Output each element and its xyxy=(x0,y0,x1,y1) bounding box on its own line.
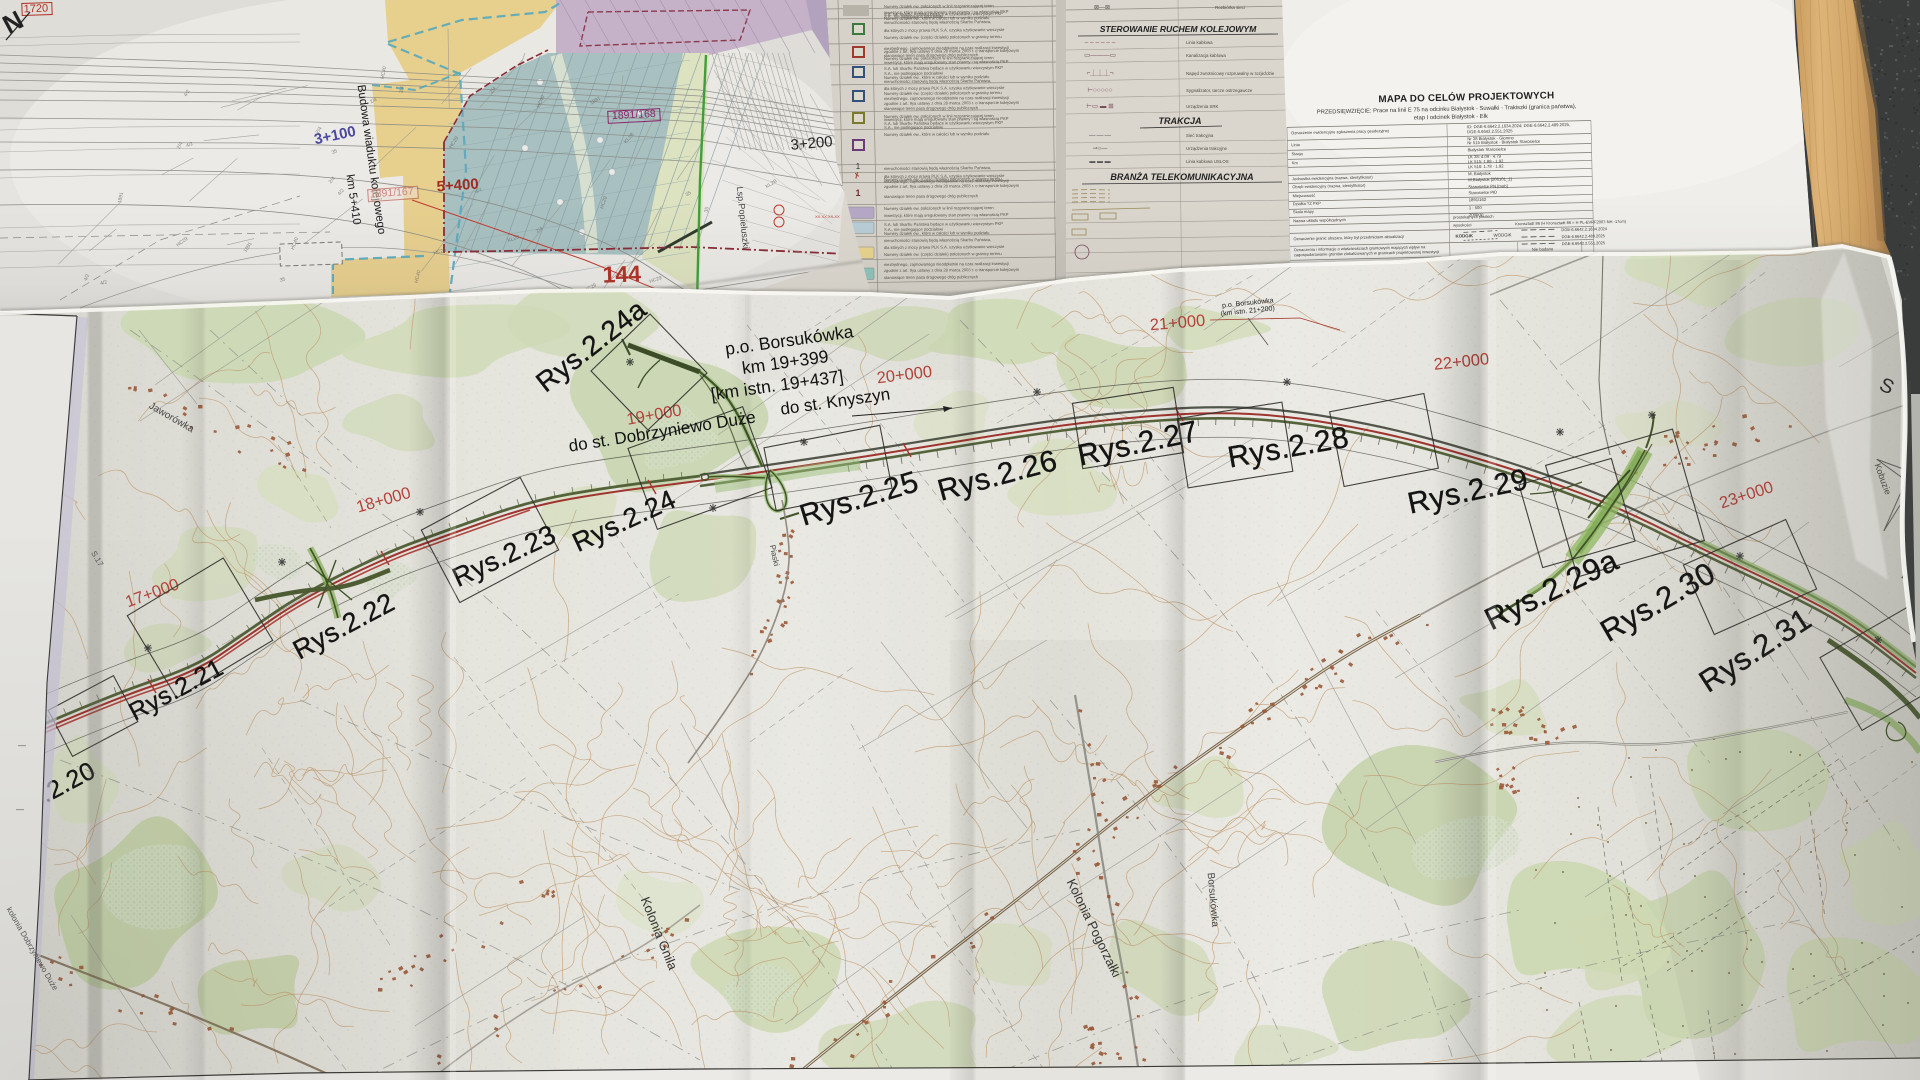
svg-text:Urządzenia trakcyjne: Urządzenia trakcyjne xyxy=(1186,146,1228,151)
svg-text:Km: Km xyxy=(1292,160,1299,165)
svg-text:5+400: 5+400 xyxy=(436,176,479,196)
svg-text:⊸○—: ⊸○— xyxy=(1093,146,1108,152)
svg-text:2/4: 2/4 xyxy=(398,86,405,94)
svg-text:Numery działek ew. (części dzi: Numery działek ew. (części działek) poło… xyxy=(884,34,1002,40)
svg-text:STEROWANIE RUCHEM KOLEJOWYM: STEROWANIE RUCHEM KOLEJOWYM xyxy=(1100,24,1257,34)
svg-text:stanowiące teren pasa drogoweg: stanowiące teren pasa drogowego dróg pub… xyxy=(884,193,979,199)
svg-text:– – – – – –: – – – – – – xyxy=(1085,39,1116,46)
svg-text:Numery działek ew., które w ca: Numery działek ew., które w całości lub … xyxy=(884,131,989,137)
svg-text:Starosielce PłD: Starosielce PłD xyxy=(1468,190,1497,196)
svg-text:DGE-6.6642.2.551.2025: DGE-6.6642.2.551.2025 xyxy=(1467,128,1513,134)
svg-text:Urządzenia SRK: Urządzenia SRK xyxy=(1186,104,1219,109)
svg-text:Linia kablowa USLOS: Linia kablowa USLOS xyxy=(1186,159,1229,164)
svg-text:LK 516: 1.78 - 1.92: LK 516: 1.78 - 1.92 xyxy=(1468,163,1504,169)
svg-text:nieruchomości stanowią będą wł: nieruchomości stanowią będą własnością S… xyxy=(884,19,991,25)
svg-text:▭———▭: ▭———▭ xyxy=(1084,52,1116,59)
svg-text:Napęd zwrotnicowy rozpruwalny: Napęd zwrotnicowy rozpruwalny w rozjeźdz… xyxy=(1186,71,1275,76)
svg-text:—·—·—: —·—·— xyxy=(1089,133,1111,139)
svg-text:nieruchomości stanowią będą wł: nieruchomości stanowią będą własnością S… xyxy=(884,78,991,84)
svg-text:S.A., nie podlegające podziało: S.A., nie podlegające podziałowi xyxy=(884,124,943,130)
svg-text:dla których z mocy prawa PLK S: dla których z mocy prawa PLK S.A. uzyska… xyxy=(884,27,1005,33)
svg-text:Linia kablowa: Linia kablowa xyxy=(1186,40,1213,45)
svg-text:Miejscowość: Miejscowość xyxy=(1292,193,1315,199)
svg-text:⊢○○○○○: ⊢○○○○○ xyxy=(1087,87,1112,94)
svg-text:Stacja: Stacja xyxy=(1292,151,1304,156)
svg-text:▬ ▬ ▬: ▬ ▬ ▬ xyxy=(1089,159,1110,165)
svg-text:nieruchomości stanowią będą wł: nieruchomości stanowią będą własnością S… xyxy=(884,165,991,171)
svg-text:Kanalizacja kablowa: Kanalizacja kablowa xyxy=(1186,53,1226,58)
svg-text:TRAKCJA: TRAKCJA xyxy=(1158,116,1201,126)
svg-text:Białystok Starosielce: Białystok Starosielce xyxy=(1467,146,1506,152)
svg-text:Linia: Linia xyxy=(1291,142,1300,147)
svg-text:BRANŻA TELEKOMUNIKACYJNA: BRANŻA TELEKOMUNIKACYJNA xyxy=(1110,172,1253,182)
svg-text:Numery działek ew. położonych: Numery działek ew. położonych w linii ro… xyxy=(884,3,994,9)
svg-text:M.Białystok [206101_1]: M.Białystok [206101_1] xyxy=(1468,176,1512,182)
svg-text:⊠—⊠: ⊠—⊠ xyxy=(1094,5,1110,11)
svg-text:Sieć trakcyjna: Sieć trakcyjna xyxy=(1186,133,1214,138)
svg-text:⌐⏊⏊⏊¬: ⌐⏊⏊⏊¬ xyxy=(1086,68,1113,77)
svg-text:Starosielce PN [mob]: Starosielce PN [mob] xyxy=(1468,183,1507,189)
svg-text:M. Białystok: M. Białystok xyxy=(1468,171,1492,177)
svg-text:Sygnalizator, tarcze ostrzegaw: Sygnalizator, tarcze ostrzegawcze xyxy=(1186,88,1253,93)
svg-text:⊢▭ ▬ ⊞: ⊢▭ ▬ ⊞ xyxy=(1086,103,1114,110)
svg-text:Rozbiórka sieci: Rozbiórka sieci xyxy=(1215,5,1245,10)
svg-text:stanowiące teren pasa drogoweg: stanowiące teren pasa drogowego dróg pub… xyxy=(884,105,979,111)
svg-text:1720: 1720 xyxy=(23,3,48,16)
svg-text:1: 1 xyxy=(855,188,860,198)
